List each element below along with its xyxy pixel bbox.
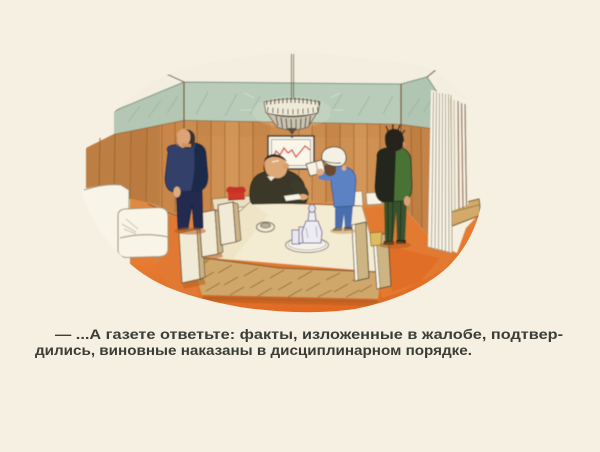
svg-text:— ...А газете ответьте: факты,: — ...А газете ответьте: факты, изложенны… (55, 327, 563, 342)
svg-text:дились, виновные наказаны в ди: дились, виновные наказаны в дисциплинарн… (35, 343, 472, 358)
